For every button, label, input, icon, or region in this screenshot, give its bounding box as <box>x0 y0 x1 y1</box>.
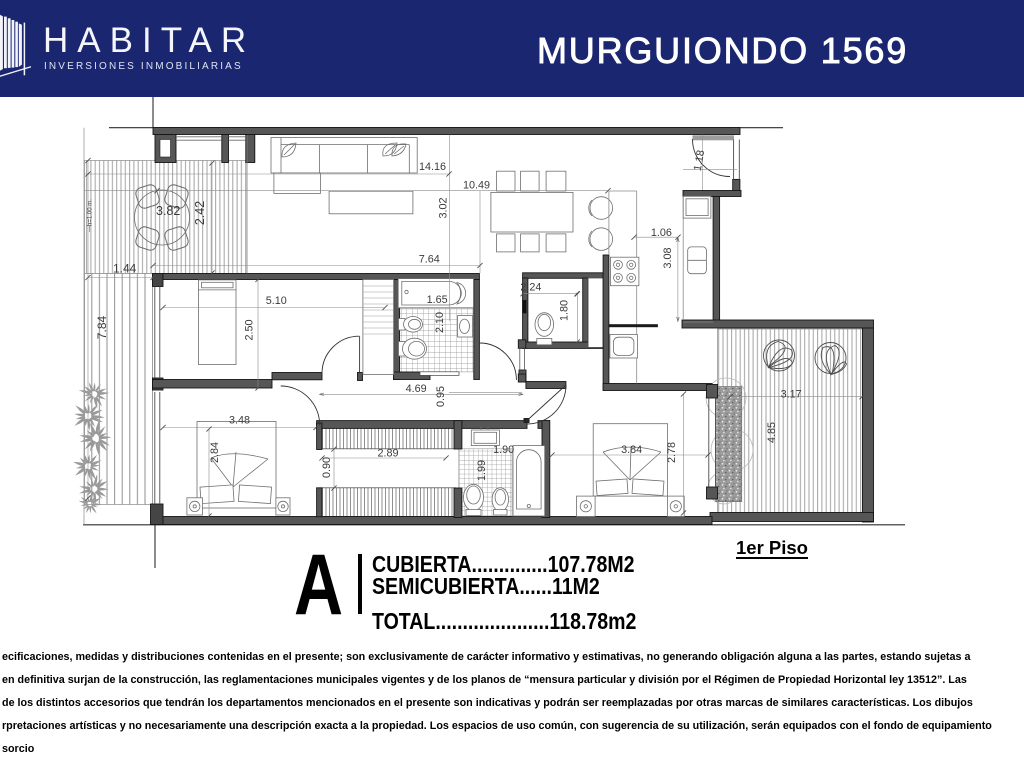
svg-text:3.08: 3.08 <box>662 247 674 268</box>
svg-text:1.99: 1.99 <box>476 460 488 481</box>
svg-text:7.64: 7.64 <box>419 254 440 266</box>
svg-text:2.24: 2.24 <box>520 282 541 294</box>
svg-text:1.65: 1.65 <box>427 294 448 306</box>
svg-text:2.42: 2.42 <box>193 201 207 225</box>
svg-text:3.84: 3.84 <box>621 444 642 456</box>
svg-text:2.10: 2.10 <box>434 312 446 333</box>
svg-text:1.18: 1.18 <box>692 149 707 172</box>
svg-text:2.50: 2.50 <box>244 319 256 340</box>
svg-text:1.44: 1.44 <box>113 262 137 276</box>
svg-text:2.84: 2.84 <box>209 442 221 463</box>
svg-text:0.90: 0.90 <box>321 457 333 478</box>
svg-text:3.17: 3.17 <box>781 389 802 401</box>
svg-text:7.84: 7.84 <box>95 315 109 339</box>
svg-text:3.48: 3.48 <box>229 415 250 427</box>
svg-text:5.10: 5.10 <box>266 295 287 307</box>
svg-text:10.49: 10.49 <box>463 180 490 192</box>
svg-text:—h=1.00 m.: —h=1.00 m. <box>88 199 94 232</box>
svg-text:1.06: 1.06 <box>651 227 672 239</box>
svg-text:1.90: 1.90 <box>493 444 514 456</box>
svg-text:2.89: 2.89 <box>378 448 399 460</box>
svg-text:4.69: 4.69 <box>406 383 427 395</box>
svg-text:3.82: 3.82 <box>156 204 180 218</box>
svg-text:14.16: 14.16 <box>419 161 446 173</box>
svg-text:3.02: 3.02 <box>438 197 450 218</box>
svg-text:2.78: 2.78 <box>666 442 678 463</box>
svg-text:0.95: 0.95 <box>435 386 447 407</box>
svg-text:4.85: 4.85 <box>766 422 778 443</box>
svg-text:1.80: 1.80 <box>559 300 571 321</box>
